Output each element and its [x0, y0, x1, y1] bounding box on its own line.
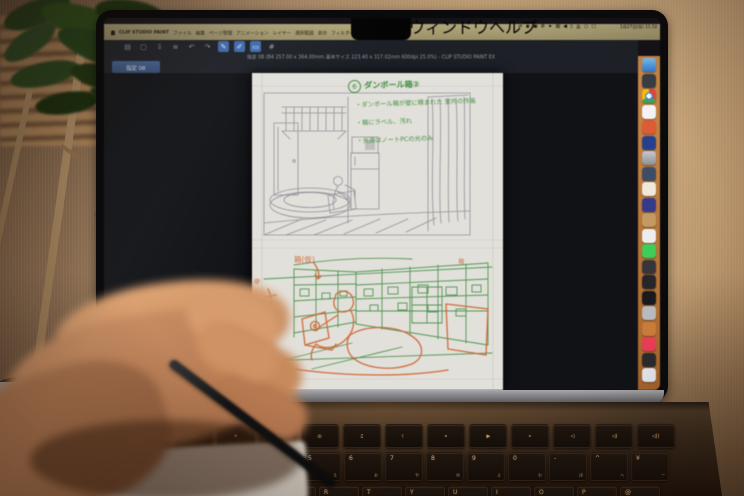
hand	[0, 0, 744, 496]
photo-scene: CLIP STUDIO PAINT ファイル編集ページ管理アニメーションレイヤー…	[0, 0, 744, 496]
